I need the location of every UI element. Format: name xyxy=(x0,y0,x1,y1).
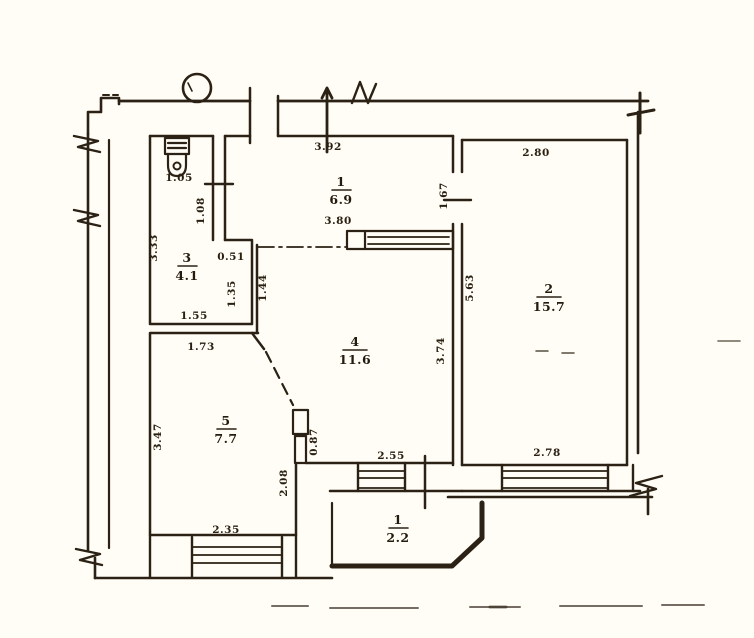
top-right-corner-tick xyxy=(628,93,654,133)
room2-bottom-wall xyxy=(462,465,640,491)
room-area: 4.1 xyxy=(175,268,198,283)
duct xyxy=(293,410,308,463)
room5-window-jambs xyxy=(150,535,296,577)
room-label-balcony: 1 2.2 xyxy=(386,512,409,545)
room-label-4: 4 11.6 xyxy=(339,334,371,367)
dim-room2-top-width: 2.80 xyxy=(522,147,550,159)
wall-break-icon xyxy=(76,549,102,565)
dim-kitchen-window-width: 2.35 xyxy=(212,524,240,536)
dim-hall-door-width: 1.67 xyxy=(438,182,450,210)
dim-hall-inner-width: 3.80 xyxy=(324,215,352,227)
room-number: 4 xyxy=(350,334,359,349)
dim-wc-notch-width: 0.51 xyxy=(217,251,245,263)
window-glazing xyxy=(502,471,608,488)
wall-break-icon xyxy=(630,476,662,496)
dim-kitchen-top-width: 1.73 xyxy=(187,341,215,353)
room-labels: 1 6.9 2 15.7 3 4.1 4 11.6 5 xyxy=(175,174,565,545)
dim-wc-bottom-width: 1.55 xyxy=(180,310,208,322)
toilet-icon xyxy=(165,138,189,176)
dim-partition-height: 1.44 xyxy=(257,274,269,302)
dim-room4-window-width: 2.55 xyxy=(377,450,405,462)
closet xyxy=(347,231,453,249)
room-number: 3 xyxy=(182,250,191,265)
dim-wc-right-height: 1.35 xyxy=(226,280,238,308)
room-number: 1 xyxy=(336,174,345,189)
scan-artifact xyxy=(272,605,704,608)
room-label-3: 3 4.1 xyxy=(175,250,198,283)
room-label-5: 5 7.7 xyxy=(214,413,237,446)
top-left-step-wall xyxy=(88,98,119,134)
column-circle-mark xyxy=(188,83,192,91)
room5-corner-stub xyxy=(252,333,264,349)
room-label-1-hall: 1 6.9 xyxy=(329,174,352,207)
dim-hall-top-width: 3.92 xyxy=(314,141,342,153)
room4-bottom-wall xyxy=(306,456,462,508)
wall-break-icon xyxy=(74,210,100,226)
room-number: 5 xyxy=(221,413,230,428)
room-area: 15.7 xyxy=(533,299,565,314)
dim-wc-left-height: 3.33 xyxy=(148,234,160,262)
room-area: 11.6 xyxy=(339,352,371,367)
window-glazing xyxy=(358,471,405,488)
floor-plan-drawing: 1.05 3.33 1.08 0.51 1.35 1.55 1.44 3.92 … xyxy=(0,0,754,638)
scan-artifact xyxy=(536,351,574,353)
dim-kitchen-left-height: 3.47 xyxy=(152,423,164,451)
dim-room2-window-width: 2.78 xyxy=(533,447,561,459)
room-5-walls xyxy=(150,333,296,577)
room-area: 6.9 xyxy=(329,192,352,207)
floor-plan-canvas: 1.05 3.33 1.08 0.51 1.35 1.55 1.44 3.92 … xyxy=(0,0,754,638)
room-area: 2.2 xyxy=(386,530,409,545)
dim-room4-right-height: 3.74 xyxy=(435,337,447,365)
left-outer-wall xyxy=(88,134,95,578)
room5-window-glazing xyxy=(192,547,282,563)
dim-room4-left-height: 2.08 xyxy=(278,469,290,497)
window-jambs xyxy=(358,463,405,491)
room-number: 2 xyxy=(544,281,553,296)
dim-duct-height: 0.87 xyxy=(308,428,320,456)
dashed-partition-line xyxy=(266,352,293,405)
room-label-2: 2 15.7 xyxy=(533,281,565,314)
bottom-right-outer-wall xyxy=(448,489,652,514)
room-area: 7.7 xyxy=(214,431,237,446)
wall-segment xyxy=(453,136,462,465)
top-wall-fixtures xyxy=(183,74,332,152)
dim-wc-door-height: 1.08 xyxy=(195,197,207,225)
column-circle-icon xyxy=(183,74,211,102)
room-number: 1 xyxy=(393,512,402,527)
room3-door-pier xyxy=(213,136,225,240)
dim-room2-left-height: 5.63 xyxy=(464,274,476,302)
wall-break-icon xyxy=(74,136,100,152)
dim-wc-niche-width: 1.05 xyxy=(165,172,193,184)
